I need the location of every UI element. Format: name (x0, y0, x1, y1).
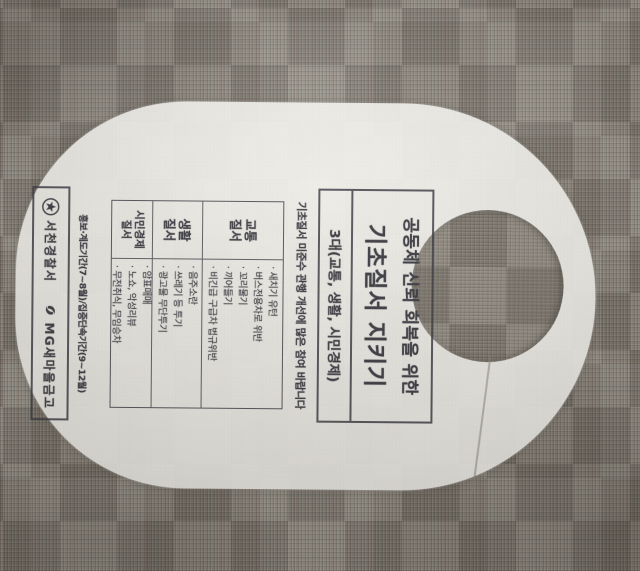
police-org: 서천경찰서 (41, 197, 61, 282)
police-emblem-icon (42, 197, 61, 216)
carpet-floor-photo: 공동체 신뢰 회복을 위한 기초질서 지키기 3대(교통, 생활, 시민경제) … (0, 0, 640, 571)
sponsor-name: MG새마을금고 (41, 322, 59, 409)
campaign-subtitle: 3대(교통, 생활, 시민경제) (318, 191, 353, 421)
participation-notice: 기초질서 미준수 관행 개선에 많은 참여 바랍니다 (292, 188, 309, 422)
campaign-title-line1: 공동체 신뢰 회복을 위한 (398, 191, 432, 421)
violation-item: 꼬리물기 (234, 266, 250, 406)
sponsor-org: MG새마을금고 (41, 302, 59, 409)
campaign-title-line2: 기초질서 지키기 (351, 191, 400, 421)
violation-items-traffic: 새치기 유턴 버스전용차로 위반 꼬리물기 끼어들기 비긴급 구급차 법규위반 (202, 260, 283, 409)
violation-table: 교통 질서 새치기 유턴 버스전용차로 위반 꼬리물기 끼어들기 비긴급 구급차… (110, 200, 285, 410)
category-line: 교통 (243, 219, 258, 242)
violation-item: 음주소란 (184, 265, 200, 405)
category-line: 질서 (119, 220, 132, 239)
campaign-title-box: 공동체 신뢰 회복을 위한 기초질서 지키기 3대(교통, 생활, 시민경제) (316, 189, 434, 424)
violation-items-life: 음주소란 쓰레기 등 투기 광고물 무단투기 (152, 259, 202, 407)
mg-logo-icon (42, 302, 58, 318)
enforcement-period: 홍보·계도기간(7~8월)/집중단속기간(9~12월) (75, 187, 91, 421)
violation-item: 쓰레기 등 투기 (169, 265, 185, 405)
door-hanger-flyer: 공동체 신뢰 회복을 위한 기초질서 지키기 3대(교통, 생활, 시민경제) … (14, 100, 597, 492)
violation-item: 버스전용차로 위반 (249, 266, 265, 406)
violation-item: 끼어들기 (219, 266, 235, 406)
table-row-traffic: 교통 질서 새치기 유턴 버스전용차로 위반 꼬리물기 끼어들기 비긴급 구급차… (202, 202, 284, 409)
category-header-civic-economy: 시민경제 질서 (112, 201, 153, 259)
violation-item: 새치기 유턴 (264, 266, 280, 406)
violation-item: 암표매매 (138, 265, 154, 405)
violation-item: 노쇼, 악성리뷰 (123, 265, 139, 405)
hanger-slit (471, 356, 491, 493)
category-header-life: 생활 질서 (153, 201, 203, 259)
violation-item: 광고물 무단투기 (154, 265, 170, 405)
category-line: 생활 (177, 218, 192, 241)
police-name: 서천경찰서 (42, 220, 60, 282)
table-row-civic-economy: 시민경제 질서 암표매매 노쇼, 악성리뷰 무전취식, 무임승차 (111, 201, 154, 407)
category-line: 시민경제 (132, 210, 145, 249)
table-row-life: 생활 질서 음주소란 쓰레기 등 투기 광고물 무단투기 (152, 201, 204, 407)
category-line: 질서 (162, 218, 177, 241)
category-header-traffic: 교통 질서 (203, 202, 284, 261)
violation-item: 비긴급 구급차 법규위반 (204, 266, 220, 406)
flyer-content: 공동체 신뢰 회복을 위한 기초질서 지키기 3대(교통, 생활, 시민경제) … (42, 186, 434, 423)
violation-items-civic-economy: 암표매매 노쇼, 악성리뷰 무전취식, 무임승차 (111, 259, 152, 407)
category-line: 질서 (228, 219, 243, 242)
footer-organizations: 서천경찰서 MG새마을금고 (30, 186, 70, 420)
violation-item: 무전취식, 무임승차 (108, 265, 124, 405)
